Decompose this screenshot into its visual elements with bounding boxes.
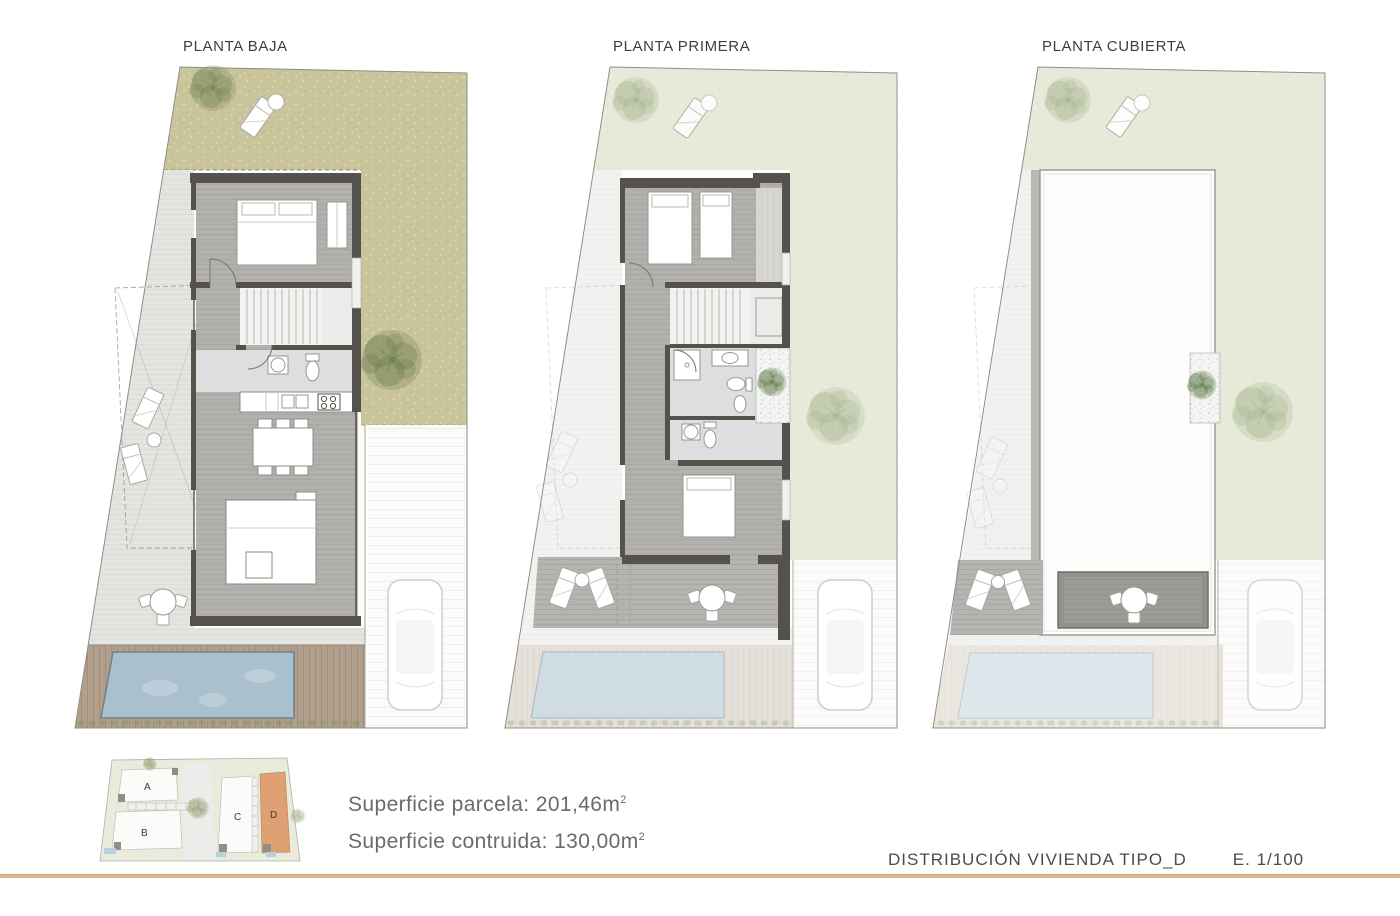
dining-table — [253, 419, 313, 475]
walkway — [128, 803, 194, 810]
plan-title-planta-cubierta: PLANTA CUBIERTA — [1042, 38, 1186, 55]
roof — [1040, 170, 1215, 635]
plan-title-planta-primera: PLANTA PRIMERA — [613, 38, 750, 55]
side-path — [252, 778, 258, 852]
building — [190, 173, 361, 626]
surface-construida: Superficie contruida: 130,00m2 — [348, 821, 645, 858]
planta-baja-drawing — [70, 60, 470, 735]
key-plan: A B C D — [88, 756, 318, 876]
sink-icon — [271, 358, 285, 372]
gold-rule — [0, 874, 1400, 878]
sink-icon — [722, 353, 738, 364]
plot-a-label: A — [144, 782, 151, 793]
window — [782, 253, 790, 285]
bidet-icon — [734, 396, 746, 413]
plot-c-label: C — [234, 812, 241, 823]
window — [782, 480, 790, 520]
master-bedroom — [683, 475, 735, 537]
car-icon — [1248, 580, 1302, 710]
surface-parcela: Superficie parcela: 201,46m2 — [348, 784, 645, 821]
plan-title-planta-baja: PLANTA BAJA — [183, 38, 288, 55]
sink-icon — [684, 425, 698, 439]
window — [352, 258, 361, 308]
roof-opening-terrace — [1058, 572, 1208, 628]
bathroom-2 — [670, 418, 783, 460]
toilet-icon — [306, 361, 319, 381]
car-icon — [388, 580, 442, 710]
hob-icon — [318, 394, 340, 410]
stairs — [240, 288, 357, 345]
sheet-footer: DISTRIBUCIÓN VIVIENDA TIPO_D E. 1/100 — [888, 850, 1304, 870]
pool-faded — [933, 645, 1223, 728]
gravel-patio — [756, 348, 790, 423]
planta-primera-drawing — [498, 60, 898, 735]
kitchen-sink-icon — [296, 395, 308, 408]
bedroom-twin — [648, 192, 732, 264]
terrace-deck — [950, 560, 1043, 635]
drawing-sheet: PLANTA BAJA PLANTA PRIMERA PLANTA CUBIER… — [0, 0, 1400, 916]
toilet-icon — [727, 378, 745, 391]
car-icon — [818, 580, 872, 710]
kitchen-counter — [240, 392, 354, 412]
pool-faded — [505, 645, 793, 728]
sofa — [226, 492, 316, 584]
bathroom — [196, 350, 357, 392]
plot-d-label: D — [270, 810, 277, 821]
sheet-title: DISTRIBUCIÓN VIVIENDA TIPO_D — [888, 850, 1187, 870]
stairs — [670, 288, 788, 345]
planta-cubierta-drawing — [928, 60, 1328, 735]
plot-b-label: B — [141, 828, 148, 839]
toilet-icon — [704, 430, 716, 448]
surface-summary: Superficie parcela: 201,46m2 Superficie … — [348, 784, 645, 858]
swimming-pool — [101, 652, 294, 718]
sheet-scale: E. 1/100 — [1233, 850, 1304, 870]
gravel-patio — [1187, 353, 1220, 423]
